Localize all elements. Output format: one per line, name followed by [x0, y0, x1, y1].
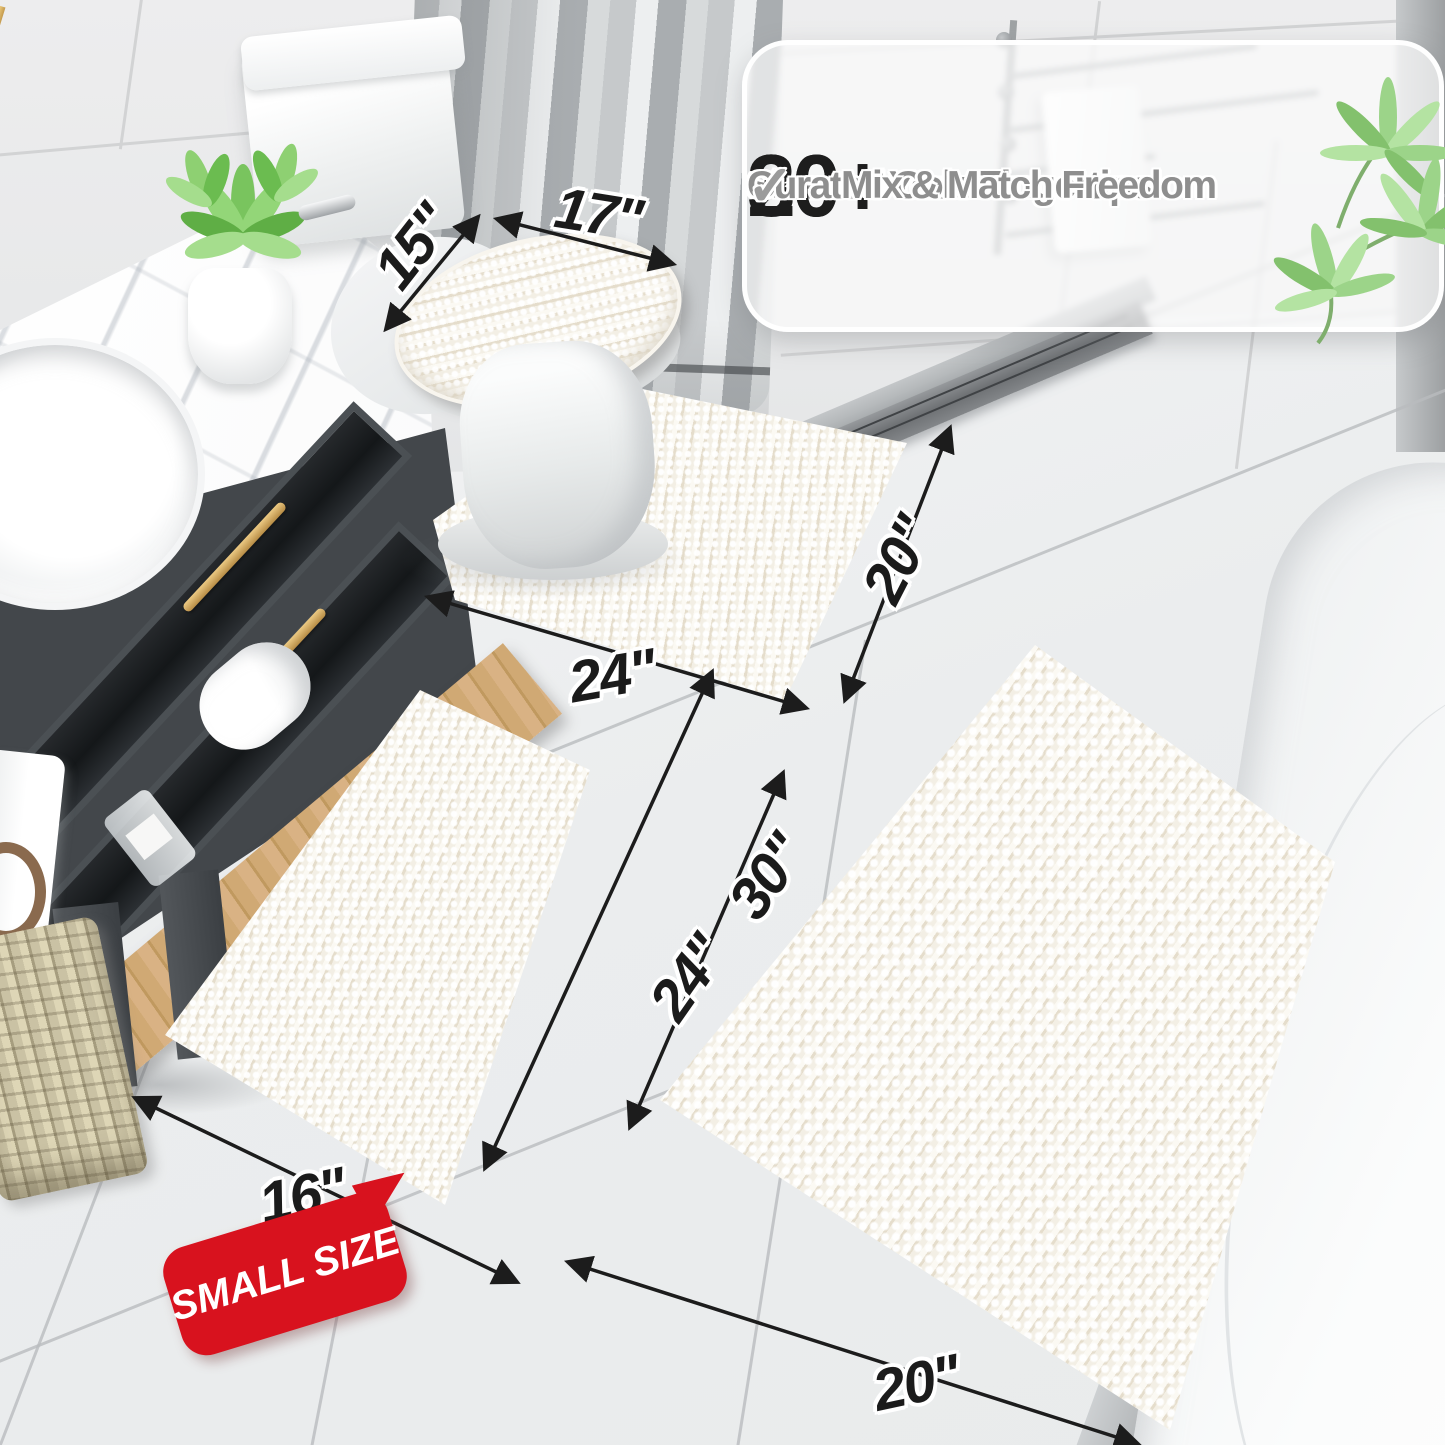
- feature-label: Mix & Match Freedom: [841, 164, 1216, 208]
- checkmark-icon: ✓: [747, 158, 794, 214]
- counter-plant: [128, 118, 358, 318]
- wall-plant: [1238, 108, 1445, 348]
- bathroom-product-scene: 15" 17" 24" 20" 16" 24" 30" 20" ✓ 20+ Si…: [0, 0, 1445, 1445]
- dim-label-lid-width: 17": [550, 174, 645, 254]
